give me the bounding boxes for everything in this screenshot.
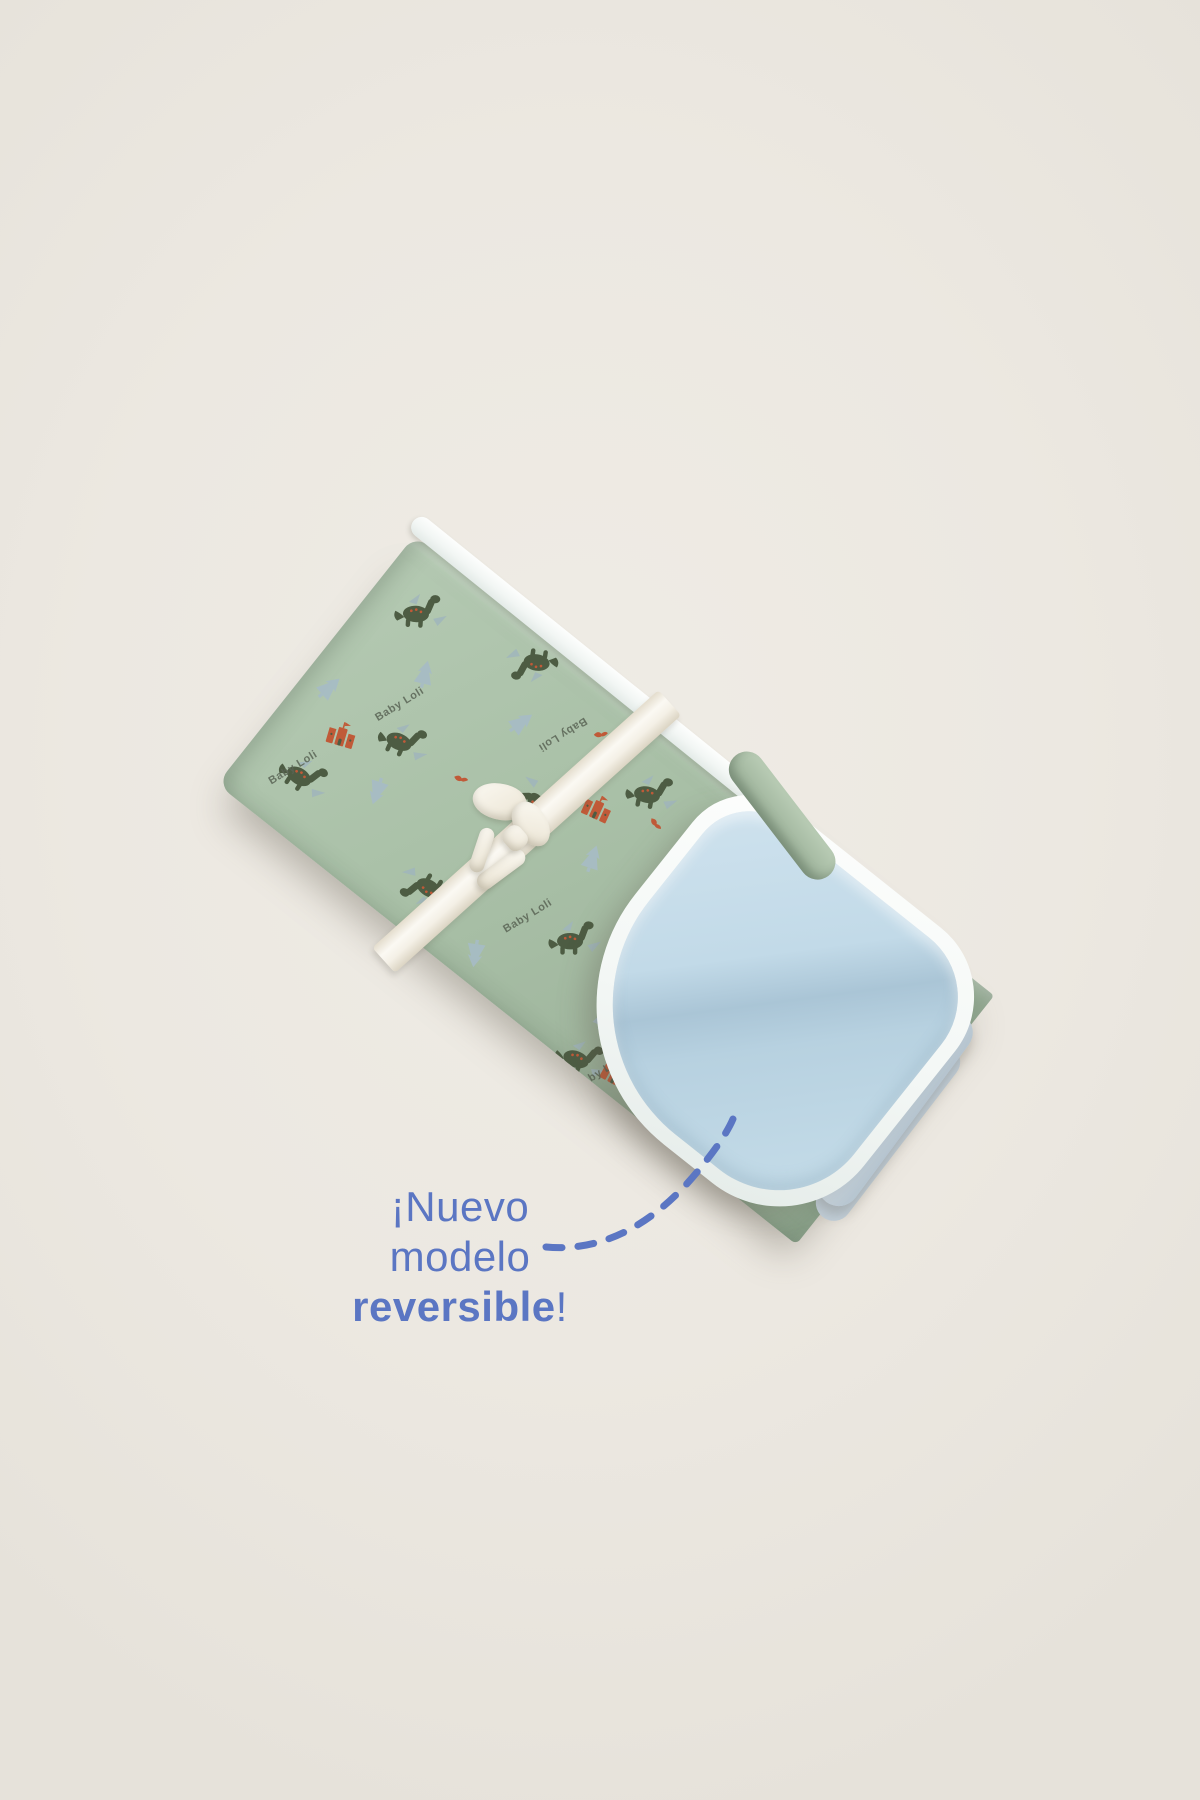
dinosaur-icon [547, 919, 605, 959]
tree-icon [312, 670, 347, 704]
annotation-line2: modelo [300, 1232, 620, 1282]
castle-icon [324, 717, 360, 750]
tree-icon [412, 657, 438, 690]
tree-icon [363, 775, 391, 809]
dinosaur-icon [392, 590, 452, 632]
tree-icon [504, 706, 539, 739]
annotation-line1: ¡Nuevo [300, 1182, 620, 1232]
annotation-punctuation: ! [556, 1283, 568, 1330]
annotation-line3: reversible! [300, 1282, 620, 1332]
annotation-text: ¡Nuevo modelo reversible! [300, 1182, 620, 1332]
annotation-emphasis: reversible [352, 1283, 555, 1330]
folded-blanket: Baby Loli Baby Loli Baby Loli Baby Loli … [217, 535, 994, 1245]
fabric-print-text: Baby Loli [536, 715, 589, 754]
bird-icon [451, 772, 470, 788]
tree-icon [463, 938, 487, 970]
bird-icon [647, 815, 664, 834]
product-photo: Baby Loli Baby Loli Baby Loli Baby Loli … [0, 0, 1200, 1800]
dinosaur-icon [499, 641, 562, 688]
dinosaur-icon [621, 768, 685, 817]
